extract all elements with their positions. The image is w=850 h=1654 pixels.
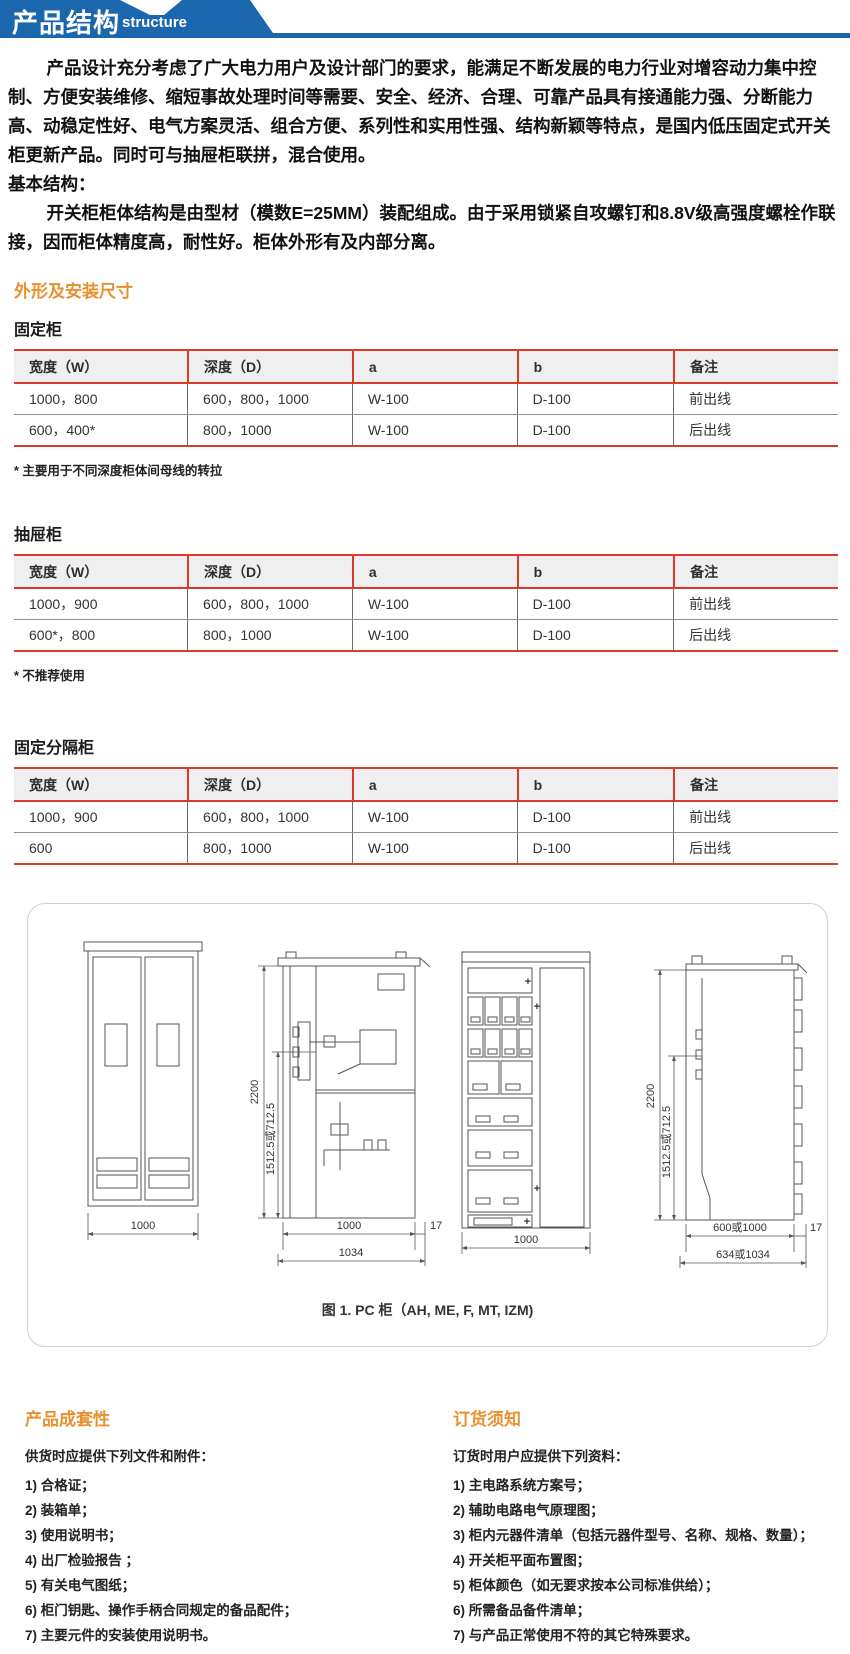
page-title: 产品结构 xyxy=(12,3,120,40)
dim-side-offset: 17 xyxy=(430,1220,442,1232)
table-cell: D-100 xyxy=(517,802,674,832)
table-fixed-cabinet: 宽度（W） 深度（D） a b 备注 1000，800 600，800，1000… xyxy=(14,349,838,447)
intro-paragraph: 产品设计充分考虑了广大电力用户及设计部门的要求，能满足不断发展的电力行业对增容动… xyxy=(8,54,842,170)
table-cell: 后出线 xyxy=(673,415,838,445)
table-cell: W-100 xyxy=(352,833,517,863)
dim-side2-inner-height: 1512.5或712.5 xyxy=(660,1106,673,1178)
col-header: a xyxy=(352,769,517,800)
list-item: 2) 装箱单； xyxy=(25,1498,425,1523)
plus-mark: + xyxy=(525,976,531,988)
list-item: 3) 使用说明书； xyxy=(25,1523,425,1548)
table-cell: D-100 xyxy=(517,589,674,619)
dim-side-width: 1000 xyxy=(337,1220,361,1232)
list-item: 7) 主要元件的安装使用说明书。 xyxy=(25,1623,425,1648)
table-cell: 600，800，1000 xyxy=(187,384,352,414)
dim-side2-height: 2200 xyxy=(645,1084,657,1108)
table-header-row: 宽度（W） 深度（D） a b 备注 xyxy=(14,769,838,802)
col-header: b xyxy=(517,769,674,800)
table-row: 1000，900 600，800，1000 W-100 D-100 前出线 xyxy=(14,589,838,619)
intro-subheading: 基本结构： xyxy=(8,170,842,199)
drawing-drawer-cabinet-front: + + + + 1000 xyxy=(456,944,601,1264)
col-header: 深度（D） xyxy=(187,351,352,382)
table-footnote: * 主要用于不同深度柜体间母线的转拉 xyxy=(14,460,850,479)
section-intro: 供货时应提供下列文件和附件： xyxy=(25,1444,425,1469)
drawing-cabinet-front-view: 1000 xyxy=(68,928,218,1258)
table-cell: W-100 xyxy=(352,415,517,445)
plus-mark: + xyxy=(534,1183,540,1195)
dim-side-outer-width: 1034 xyxy=(339,1247,363,1259)
list-item: 1) 合格证； xyxy=(25,1473,425,1498)
col-header: 备注 xyxy=(673,556,838,587)
list-item: 1) 主电路系统方案号； xyxy=(453,1473,850,1498)
col-header: 备注 xyxy=(673,769,838,800)
section-ordering-notes: 订货须知 订货时用户应提供下列资料： 1) 主电路系统方案号； 2) 辅助电路电… xyxy=(425,1405,850,1648)
list-item: 5) 有关电气图纸； xyxy=(25,1573,425,1598)
table-cell: 600 xyxy=(14,833,187,863)
table-cell: W-100 xyxy=(352,802,517,832)
col-header: 深度（D） xyxy=(187,769,352,800)
table-cell: 后出线 xyxy=(673,833,838,863)
dim-side-inner-height: 1512.5或712.5 xyxy=(264,1103,277,1175)
table-footnote: * 不推荐使用 xyxy=(14,665,850,684)
table-cell: 600，400* xyxy=(14,415,187,445)
table-row: 600，400* 800，1000 W-100 D-100 后出线 xyxy=(14,414,838,445)
table-cell: 800，1000 xyxy=(187,415,352,445)
table-title-fixed-cabinet: 固定柜 xyxy=(14,316,850,340)
section-title: 产品成套性 xyxy=(25,1405,425,1430)
dim-side2-width: 600或1000 xyxy=(713,1221,767,1234)
table-cell: D-100 xyxy=(517,415,674,445)
list-item: 3) 柜内元器件清单（包括元器件型号、名称、规格、数量）； xyxy=(453,1523,850,1548)
table-row: 1000，800 600，800，1000 W-100 D-100 前出线 xyxy=(14,384,838,414)
col-header: 深度（D） xyxy=(187,556,352,587)
intro-block: 产品设计充分考虑了广大电力用户及设计部门的要求，能满足不断发展的电力行业对增容动… xyxy=(8,54,842,257)
col-header: 宽度（W） xyxy=(14,769,187,800)
dim-drawer-width: 1000 xyxy=(514,1234,538,1246)
table-header-row: 宽度（W） 深度（D） a b 备注 xyxy=(14,556,838,589)
table-title-fixed-partition-cabinet: 固定分隔柜 xyxy=(14,734,850,758)
ordering-list: 1) 主电路系统方案号； 2) 辅助电路电气原理图； 3) 柜内元器件清单（包括… xyxy=(453,1473,850,1648)
list-item: 5) 柜体颜色（如无要求按本公司标准供给）； xyxy=(453,1573,850,1598)
page-subtitle: structure xyxy=(122,14,187,31)
plus-mark: + xyxy=(534,1001,540,1013)
table-fixed-partition-cabinet: 宽度（W） 深度（D） a b 备注 1000，900 600，800，1000… xyxy=(14,767,838,865)
list-item: 6) 所需备品备件清单； xyxy=(453,1598,850,1623)
dim-front-width: 1000 xyxy=(131,1220,155,1232)
table-cell: 800，1000 xyxy=(187,833,352,863)
section-product-completeness: 产品成套性 供货时应提供下列文件和附件： 1) 合格证； 2) 装箱单； 3) … xyxy=(0,1405,425,1648)
table-cell: D-100 xyxy=(517,384,674,414)
table-cell: 后出线 xyxy=(673,620,838,650)
table-cell: D-100 xyxy=(517,620,674,650)
table-cell: 600，800，1000 xyxy=(187,589,352,619)
drawing-cabinet-side-section: 2200 1512.5或712.5 1000 17 1034 xyxy=(228,934,448,1274)
table-drawer-cabinet: 宽度（W） 深度（D） a b 备注 1000，900 600，800，1000… xyxy=(14,554,838,652)
table-cell: W-100 xyxy=(352,384,517,414)
col-header: 宽度（W） xyxy=(14,351,187,382)
table-cell: W-100 xyxy=(352,589,517,619)
section-title-dimensions: 外形及安装尺寸 xyxy=(14,277,850,302)
header-banner: 产品结构 structure xyxy=(0,0,850,38)
list-item: 4) 开关柜平面布置图； xyxy=(453,1548,850,1573)
drawing-cabinet-side-view: 2200 1512.5或712.5 600或1000 17 634或1034 xyxy=(626,944,826,1274)
table-title-drawer-cabinet: 抽屉柜 xyxy=(14,521,850,545)
section-title: 订货须知 xyxy=(453,1405,850,1430)
intro-paragraph: 开关柜柜体结构是由型材（模数E=25MM）装配组成。由于采用锁紧自攻螺钉和8.8… xyxy=(8,199,842,257)
col-header: a xyxy=(352,556,517,587)
table-cell: W-100 xyxy=(352,620,517,650)
list-item: 4) 出厂检验报告 ； xyxy=(25,1548,425,1573)
table-cell: 800，1000 xyxy=(187,620,352,650)
col-header: a xyxy=(352,351,517,382)
table-cell: 前出线 xyxy=(673,802,838,832)
col-header: b xyxy=(517,556,674,587)
table-cell: 600*，800 xyxy=(14,620,187,650)
dim-side-height: 2200 xyxy=(249,1080,261,1104)
table-cell: 前出线 xyxy=(673,384,838,414)
table-cell: 600，800，1000 xyxy=(187,802,352,832)
completeness-list: 1) 合格证； 2) 装箱单； 3) 使用说明书； 4) 出厂检验报告 ； 5)… xyxy=(25,1473,425,1648)
bottom-sections: 产品成套性 供货时应提供下列文件和附件： 1) 合格证； 2) 装箱单； 3) … xyxy=(0,1405,850,1648)
plus-mark: + xyxy=(524,1216,530,1228)
table-cell: D-100 xyxy=(517,833,674,863)
col-header: b xyxy=(517,351,674,382)
col-header: 备注 xyxy=(673,351,838,382)
table-header-row: 宽度（W） 深度（D） a b 备注 xyxy=(14,351,838,384)
list-item: 2) 辅助电路电气原理图； xyxy=(453,1498,850,1523)
table-row: 600*，800 800，1000 W-100 D-100 后出线 xyxy=(14,619,838,650)
list-item: 7) 与产品正常使用不符的其它特殊要求。 xyxy=(453,1623,850,1648)
figure-box: 1000 xyxy=(27,903,828,1347)
table-cell: 1000，800 xyxy=(14,384,187,414)
section-intro: 订货时用户应提供下列资料： xyxy=(453,1444,850,1469)
col-header: 宽度（W） xyxy=(14,556,187,587)
table-cell: 1000，900 xyxy=(14,802,187,832)
table-row: 1000，900 600，800，1000 W-100 D-100 前出线 xyxy=(14,802,838,832)
dim-side2-outer-width: 634或1034 xyxy=(716,1248,770,1261)
table-row: 600 800，1000 W-100 D-100 后出线 xyxy=(14,832,838,863)
list-item: 6) 柜门钥匙、操作手柄合同规定的备品配件； xyxy=(25,1598,425,1623)
table-cell: 前出线 xyxy=(673,589,838,619)
figure-caption: 图 1. PC 柜（AH, ME, F, MT, IZM) xyxy=(28,1300,827,1320)
dim-side2-offset: 17 xyxy=(810,1222,822,1234)
table-cell: 1000，900 xyxy=(14,589,187,619)
